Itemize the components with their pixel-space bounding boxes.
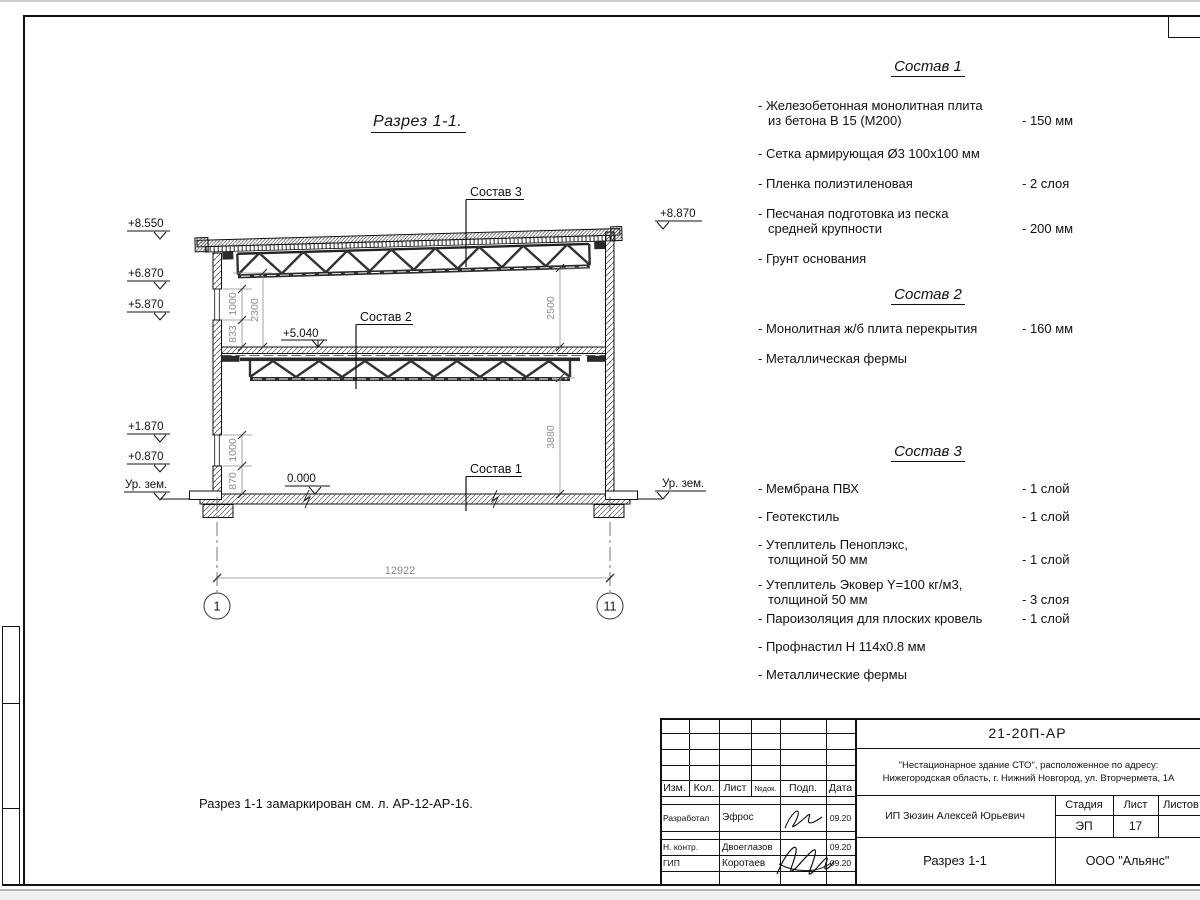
spec-item-value: - 200 мм [1022, 221, 1098, 236]
grid-axes [217, 497, 610, 592]
spec-section-heading: Состав 1 [758, 58, 1098, 76]
break-mark [492, 490, 498, 508]
margin-cells-outer [2, 626, 3, 885]
elevation-label: +5.040 [283, 328, 319, 340]
col-izm: Изм. [660, 780, 689, 796]
drawing-title: Разрез 1-1. [371, 112, 466, 132]
client-name: ИП Зюзин Алексей Юрьевич [855, 795, 1055, 837]
titleblock-line [780, 718, 781, 884]
titleblock-line [660, 718, 662, 885]
spec-item-value: - 2 слоя [1022, 176, 1098, 191]
leader-label: Состав 3 [470, 185, 522, 199]
spec-item-value: - 160 мм [1022, 321, 1098, 336]
inner-elevation-marks: +5.040 0.000 [281, 328, 330, 494]
format-box-bottom [1168, 37, 1200, 38]
spec-item: - Сетка армирующая Ø3 100х100 мм [758, 146, 1098, 161]
roof-assembly [195, 226, 623, 280]
span-dimension: 12922 [213, 565, 614, 582]
spec-item: - Геотекстиль- 1 слой [758, 509, 1098, 524]
spec-item-name: - Пленка полиэтиленовая [758, 176, 1022, 191]
elevation-label: Ур. зем. [662, 478, 704, 490]
spec-item: - Железобетонная монолитная плитаиз бето… [758, 98, 1098, 128]
spec-item-name: - Профнастил Н 114х0.8 мм [758, 639, 1022, 654]
spec-item: - Пленка полиэтиленовая- 2 слоя [758, 176, 1098, 191]
dimension-label: 2500 [545, 296, 557, 320]
titleblock-line [660, 733, 855, 734]
margin-cells-inner [19, 626, 20, 885]
sig-role: Разработал [663, 804, 718, 831]
dimension-label: 1000 [227, 292, 239, 316]
spec-item: - Утеплитель Эковер Y=100 кг/м3,толщиной… [758, 577, 1098, 607]
col-list: Лист [719, 780, 751, 796]
sheets-label: Листов [1158, 795, 1200, 815]
spec-item-name: - Монолитная ж/б плита перекрытия [758, 321, 1022, 336]
elevation-label: 0.000 [287, 473, 316, 485]
drawing-sheet: 1 11 12922 1000 833 2300 1000 870 [0, 0, 1200, 900]
spec-item-name: - Пароизоляция для плоских кровель [758, 611, 1022, 626]
sheet-label: Лист [1113, 795, 1158, 815]
frame-left [23, 15, 25, 885]
col-kol: Кол. [689, 780, 719, 796]
frame-top [23, 15, 1200, 17]
dimension-label: 870 [227, 472, 239, 490]
right-wall [606, 232, 615, 494]
spec-item-name: - Утеплитель Эковер Y=100 кг/м3,толщиной… [758, 577, 1022, 607]
sig-date: 09.20 [826, 804, 855, 831]
spec-item-name: - Грунт основания [758, 251, 1022, 266]
sheet-number: 17 [1113, 815, 1158, 837]
upper-truss-web [237, 244, 589, 275]
titleblock-line [660, 765, 855, 766]
spec-item-value: - 1 слой [1022, 509, 1098, 524]
sig-role: ГИП [663, 855, 718, 871]
spec-section-title: Состав 1 [891, 58, 965, 77]
spec-item-name: - Геотекстиль [758, 509, 1022, 524]
sig-role: Н. контр. [663, 839, 718, 855]
spec-item: - Металлические фермы [758, 667, 1098, 682]
project-name: "Нестационарное здание СТО", расположенн… [857, 748, 1200, 795]
middle-floor [222, 347, 606, 381]
leader-label: Состав 1 [470, 462, 522, 476]
dimension-label: 833 [227, 325, 239, 343]
elevation-label: +8.870 [660, 208, 696, 220]
col-data: Дата [826, 780, 855, 796]
spec-section-heading: Состав 3 [758, 443, 1098, 461]
spec-item: - Грунт основания [758, 251, 1098, 266]
format-box-left [1168, 15, 1169, 38]
spec-item-value: - 3 слоя [1022, 592, 1098, 607]
spec-item-name: - Мембрана ПВХ [758, 481, 1022, 496]
elevation-marks-left: +8.550 +6.870 +5.870 +1.870 +0.870 Ур. з… [124, 218, 170, 500]
dimension-label: 1000 [227, 438, 239, 462]
elevation-label: +1.870 [128, 421, 164, 433]
composition-leaders: Состав 3 Состав 2 Состав 1 [356, 185, 524, 511]
sig-name: Эфрос [722, 804, 779, 831]
dimension-label: 2300 [249, 298, 261, 322]
break-mark [304, 490, 310, 508]
spec-item: - Профнастил Н 114х0.8 мм [758, 639, 1098, 654]
elevation-label: +0.870 [128, 451, 164, 463]
left-wall [213, 253, 222, 494]
stage-value: ЭП [1055, 815, 1113, 837]
titleblock-line [660, 796, 855, 797]
axis-label: 1 [214, 600, 221, 614]
left-dimension-ticks [238, 269, 267, 498]
spec-item: - Металлическая фермы [758, 351, 1098, 366]
sig-date: 09.20 [826, 839, 855, 855]
doc-number: 21-20П-АР [855, 718, 1200, 748]
axis-label: 11 [604, 600, 617, 614]
spec-item-value: - 1 слой [1022, 552, 1098, 567]
signature-developer [785, 811, 822, 828]
footing-plate-left [190, 491, 222, 500]
col-podp: Подп. [780, 780, 826, 796]
spec-item-name: - Сетка армирующая Ø3 100х100 мм [758, 146, 1022, 161]
spec-item-value: - 1 слой [1022, 481, 1098, 496]
titleblock-line [660, 749, 855, 750]
col-ndok: №док. [751, 780, 780, 796]
spec-item-name: - Утеплитель Пеноплэкс,толщиной 50 мм [758, 537, 1022, 567]
foundation-right [594, 505, 624, 518]
spec-item-name: - Металлические фермы [758, 667, 1022, 682]
sig-name: Двоеглазов [722, 839, 779, 855]
spec-item-name: - Песчаная подготовка из пескасредней кр… [758, 206, 1022, 236]
margin-cell-divider [2, 703, 19, 704]
right-dimensions [552, 268, 590, 494]
elevation-marks-right: +8.870 Ур. зем. [655, 208, 706, 499]
dimension-label: 3880 [545, 425, 557, 449]
axis-bubble-1 [204, 593, 230, 619]
spec-item-value: - 1 слой [1022, 611, 1098, 626]
axis-bubble-11 [597, 593, 623, 619]
project-line1: "Нестационарное здание СТО", расположенн… [899, 759, 1159, 772]
signature-checker-stroke [779, 863, 831, 871]
leader-label: Состав 2 [360, 310, 412, 324]
titleblock-line [719, 718, 720, 884]
right-dimension-ticks [556, 264, 564, 498]
sheet-title: Разрез 1-1 [855, 837, 1055, 884]
frame-bottom [2, 884, 1200, 886]
spec-item: - Мембрана ПВХ- 1 слой [758, 481, 1098, 496]
left-dimensions [223, 273, 272, 494]
spec-section-title: Состав 2 [891, 286, 965, 305]
sig-date: 09.20 [826, 855, 855, 871]
spec-item: - Утеплитель Пеноплэкс,толщиной 50 мм- 1… [758, 537, 1098, 567]
elevation-label: +6.870 [128, 268, 164, 280]
sheet-note: Разрез 1-1 замаркирован см. л. АР-12-АР-… [199, 796, 473, 811]
spec-item-name: - Металлическая фермы [758, 351, 1022, 366]
titleblock-line [660, 871, 855, 872]
dimension-label: 12922 [385, 565, 416, 577]
company-name: ООО "Альянс" [1055, 837, 1200, 884]
spec-section-title: Состав 3 [891, 443, 965, 462]
spec-section-heading: Состав 2 [758, 286, 1098, 304]
margin-cell-divider [2, 808, 19, 809]
spec-item: - Песчаная подготовка из пескасредней кр… [758, 206, 1098, 236]
foundation-left [203, 505, 233, 518]
footing-plate-right [606, 491, 638, 500]
titleblock-line [660, 831, 855, 832]
middle-truss-web [250, 361, 570, 377]
sig-name: Коротаев [722, 855, 779, 871]
margin-cell-divider [2, 626, 19, 627]
project-line2: Нижегородская область, г. Нижний Новгоро… [883, 772, 1175, 785]
elevation-label: +8.550 [128, 218, 164, 230]
spec-item: - Пароизоляция для плоских кровель- 1 сл… [758, 611, 1098, 626]
page-edge-top [0, 0, 1200, 2]
spec-item-name: - Железобетонная монолитная плитаиз бето… [758, 98, 1022, 128]
elevation-label: Ур. зем. [125, 479, 167, 491]
spec-item-value: - 150 мм [1022, 113, 1098, 128]
elevation-label: +5.870 [128, 299, 164, 311]
stage-label: Стадия [1055, 795, 1113, 815]
spec-item: - Монолитная ж/б плита перекрытия- 160 м… [758, 321, 1098, 336]
page-edge-bottom [0, 891, 1200, 900]
ground-floor [160, 490, 662, 518]
